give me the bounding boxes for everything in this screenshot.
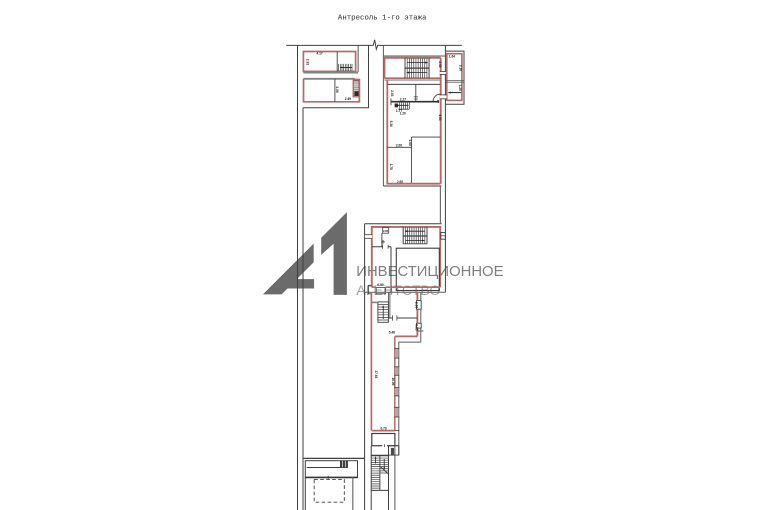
svg-text:1.60: 1.60 (408, 140, 412, 146)
svg-text:2.00: 2.00 (396, 143, 402, 147)
svg-text:2.85: 2.85 (383, 229, 389, 233)
svg-text:Антресоль 1-го этажа: Антресоль 1-го этажа (338, 15, 427, 23)
svg-text:3.10: 3.10 (459, 65, 463, 71)
svg-text:1.75: 1.75 (389, 164, 393, 170)
svg-text:2.06: 2.06 (335, 86, 339, 92)
svg-text:1.64: 1.64 (449, 54, 455, 58)
svg-text:2.10: 2.10 (414, 302, 418, 308)
svg-text:2.69: 2.69 (345, 97, 351, 101)
svg-text:ИНВЕСТИЦИОННОЕ: ИНВЕСТИЦИОННОЕ (356, 263, 503, 280)
svg-text:0.90: 0.90 (377, 283, 383, 287)
svg-text:10.95: 10.95 (391, 377, 395, 385)
svg-text:5.36: 5.36 (389, 121, 393, 127)
svg-text:2.43: 2.43 (438, 61, 442, 67)
svg-text:2.27: 2.27 (400, 98, 406, 102)
svg-text:5.48: 5.48 (389, 330, 395, 334)
svg-text:1.20: 1.20 (400, 111, 406, 115)
svg-text:4.93: 4.93 (438, 114, 442, 120)
svg-text:17.63: 17.63 (374, 370, 378, 378)
svg-text:0.95: 0.95 (415, 324, 419, 330)
svg-text:1.26: 1.26 (458, 85, 462, 91)
svg-text:2.63: 2.63 (390, 90, 394, 96)
svg-text:4.17: 4.17 (317, 52, 323, 56)
svg-text:2.93: 2.93 (306, 59, 310, 65)
